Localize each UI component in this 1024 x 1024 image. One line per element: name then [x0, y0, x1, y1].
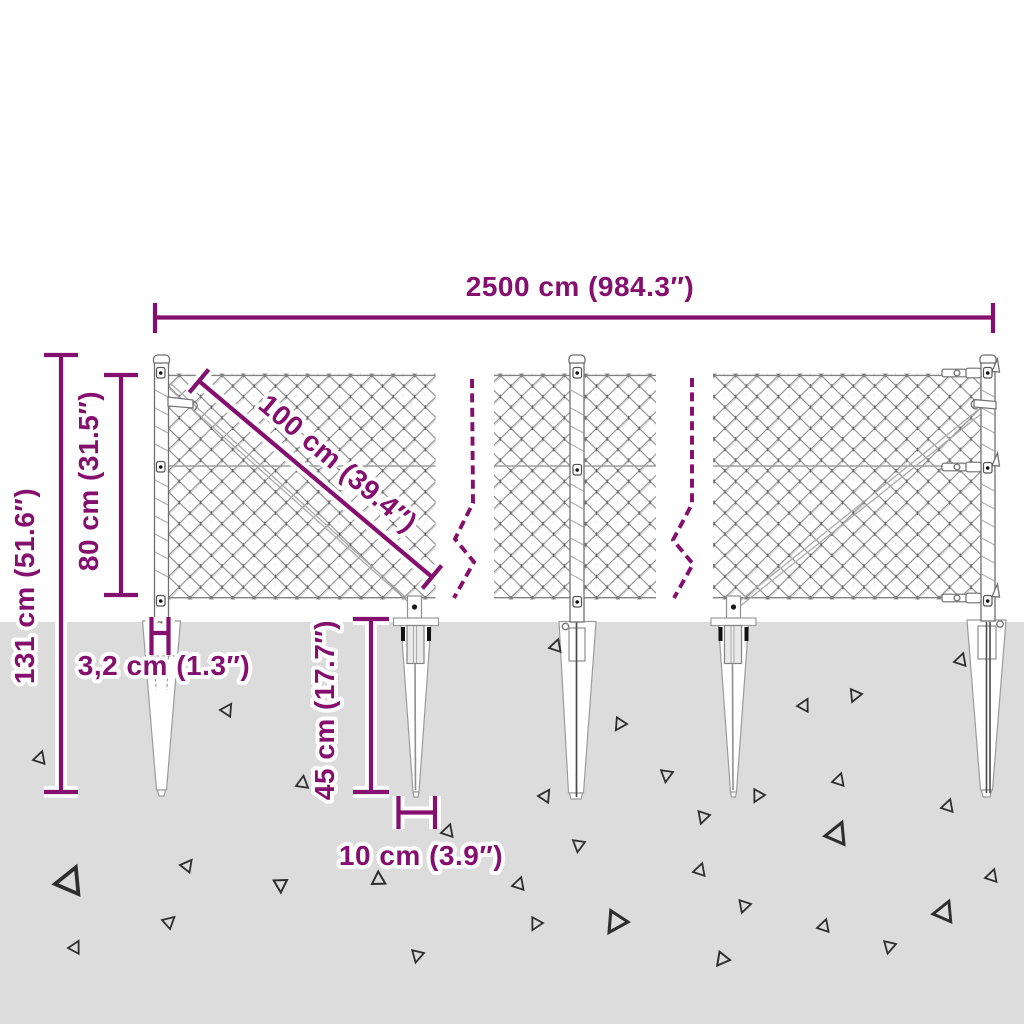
svg-text:80 cm (31.5″): 80 cm (31.5″) — [73, 391, 104, 571]
svg-text:10 cm (3.9″): 10 cm (3.9″) — [339, 840, 503, 871]
svg-text:131 cm (51.6″): 131 cm (51.6″) — [9, 488, 40, 684]
svg-text:45 cm (17.7″): 45 cm (17.7″) — [309, 620, 340, 800]
svg-text:2500 cm (984.3″): 2500 cm (984.3″) — [466, 271, 694, 302]
svg-text:3,2 cm (1.3″): 3,2 cm (1.3″) — [78, 650, 250, 681]
